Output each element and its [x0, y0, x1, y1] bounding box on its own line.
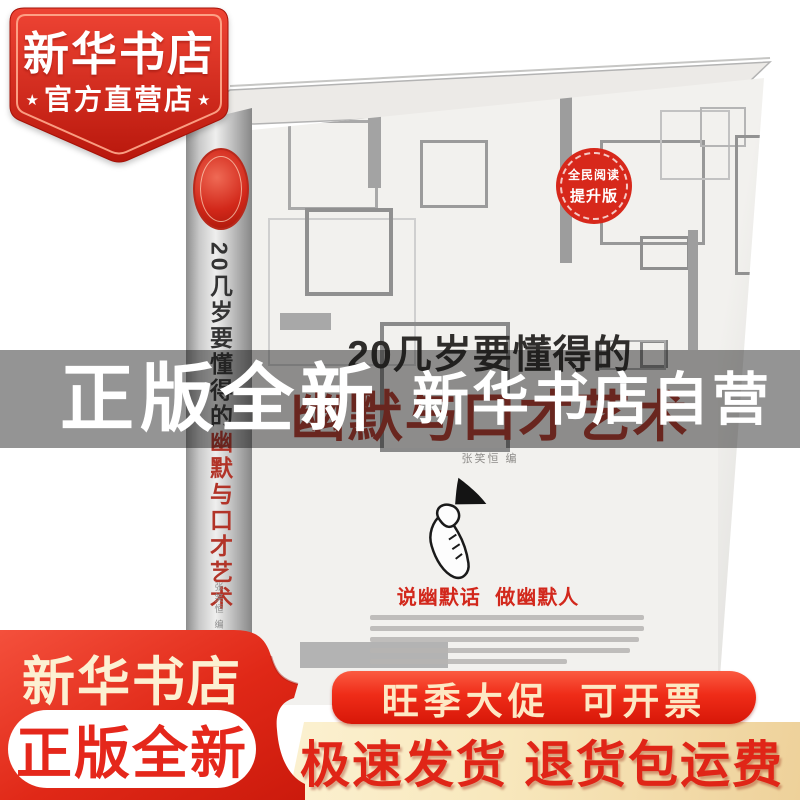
cover-paragraph-placeholder [370, 615, 644, 670]
star-icon: ★ [23, 92, 44, 109]
bottom-left-ribbon-panel: 新华书店 正版全新 [0, 630, 320, 800]
store-shield-badge: 新华书店 ★官方直营店★ [6, 4, 232, 168]
spine-author: 张笑恒 编 [213, 582, 226, 631]
reading-promo-badge-icon: 全民阅读 提升版 [556, 148, 632, 224]
product-image: { "store_badge": { "name": "新华书店", "sub"… [0, 0, 800, 800]
genuine-new-pill-text: 正版全新 [16, 709, 248, 790]
promo-pill: 旺季大促 可开票 [332, 671, 756, 724]
decor-square [288, 120, 378, 210]
mid-overlay-banner: 正版全新 新华书店自营 [0, 350, 800, 448]
shield-store-name: 新华书店 [6, 18, 232, 84]
mid-banner-store-label: 新华书店自营 [412, 350, 772, 450]
decor-square [420, 140, 488, 208]
shipping-banner: 极速发货 退货包运费 [258, 722, 800, 800]
mid-banner-genuine-label: 正版全新 [60, 350, 380, 448]
badge-dashed-ring [560, 152, 628, 220]
shield-subtitle-text: 官方直营店 [44, 84, 194, 115]
star-icon: ★ [194, 92, 215, 109]
decor-square [640, 236, 690, 270]
promo-pill-text: 旺季大促 可开票 [382, 671, 707, 725]
cover-author: 张笑恒 编 [234, 450, 746, 466]
genuine-new-pill: 正版全新 [8, 710, 256, 788]
cover-slogan: 说幽默话 做幽默人 [232, 581, 744, 610]
shield-subtitle: ★官方直营店★ [6, 78, 232, 118]
decor-square [305, 208, 393, 296]
shipping-banner-text: 极速发货 退货包运费 [300, 725, 784, 797]
hand-doodle-icon [414, 476, 506, 588]
bottom-left-store-name: 新华书店 [0, 640, 264, 716]
